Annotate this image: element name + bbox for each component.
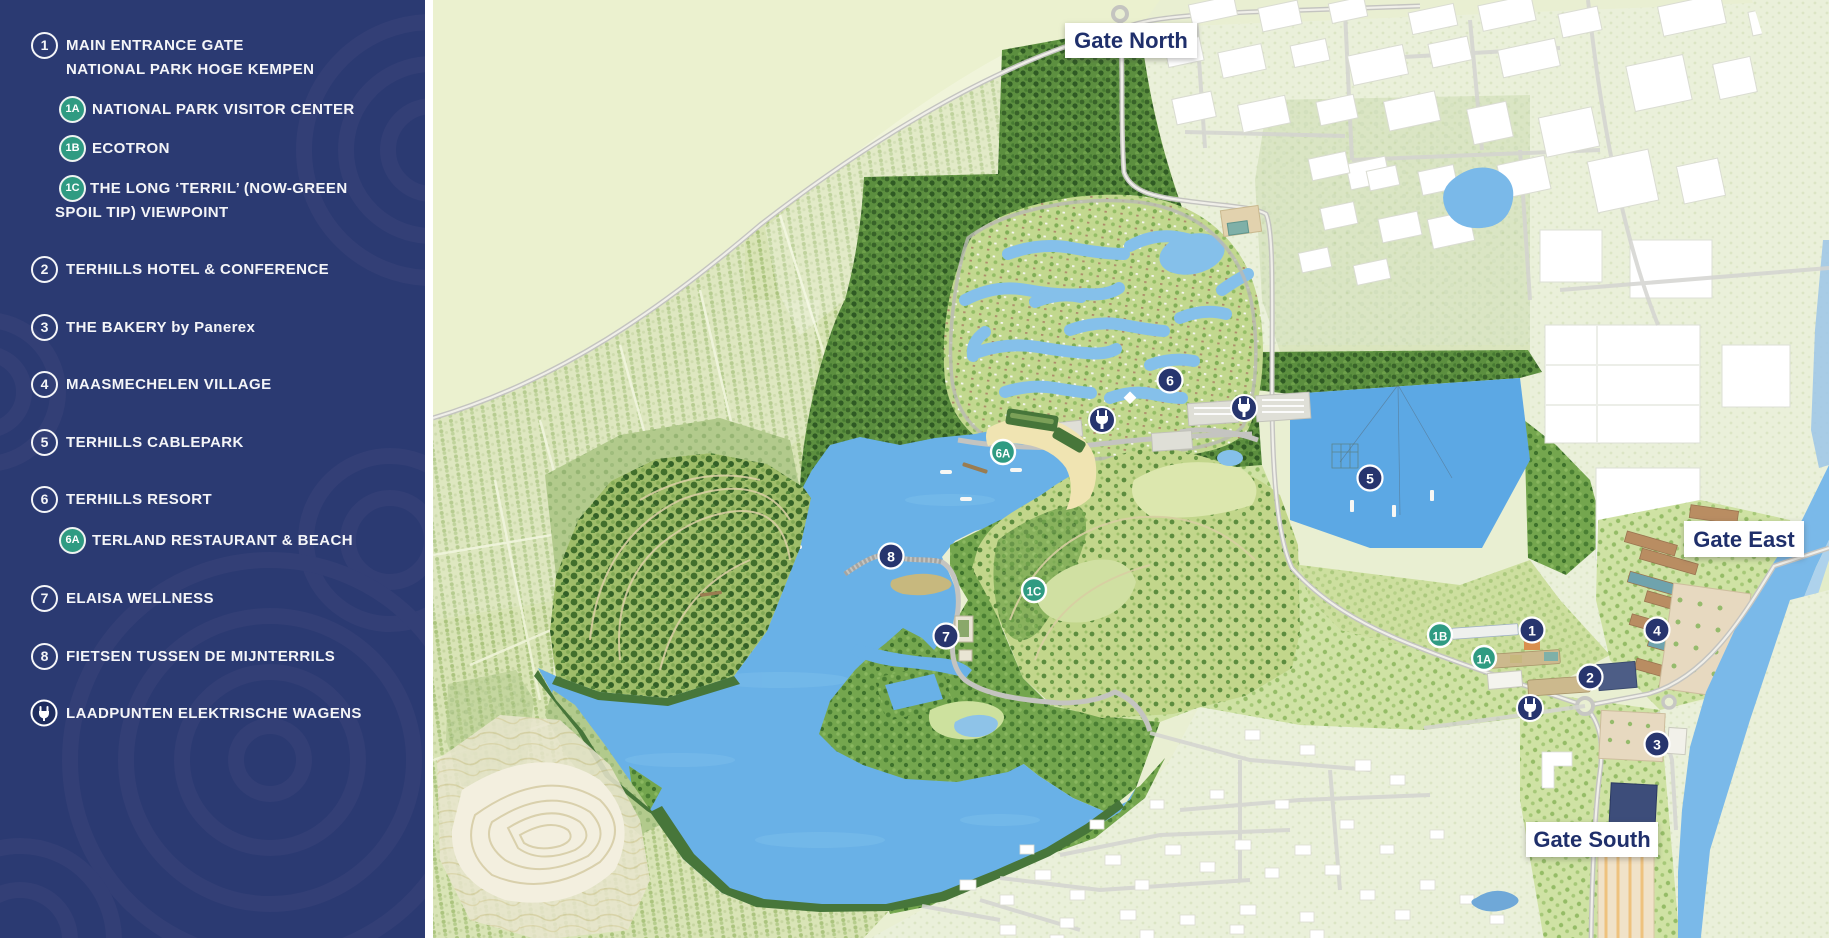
svg-text:1: 1 [1528,623,1536,639]
svg-text:2: 2 [1586,670,1594,686]
svg-text:3: 3 [1653,737,1661,753]
svg-text:1C: 1C [1027,587,1042,599]
svg-text:Gate East: Gate East [1693,527,1795,552]
svg-text:6: 6 [1166,373,1174,389]
svg-text:8: 8 [887,549,895,565]
svg-text:5: 5 [1366,471,1374,487]
svg-text:7: 7 [942,629,950,645]
svg-text:4: 4 [1653,623,1661,639]
svg-text:1B: 1B [1433,632,1448,644]
svg-text:Gate South: Gate South [1533,827,1650,852]
svg-text:1A: 1A [1477,655,1492,667]
svg-text:6A: 6A [996,449,1011,461]
svg-text:Gate North: Gate North [1074,28,1188,53]
